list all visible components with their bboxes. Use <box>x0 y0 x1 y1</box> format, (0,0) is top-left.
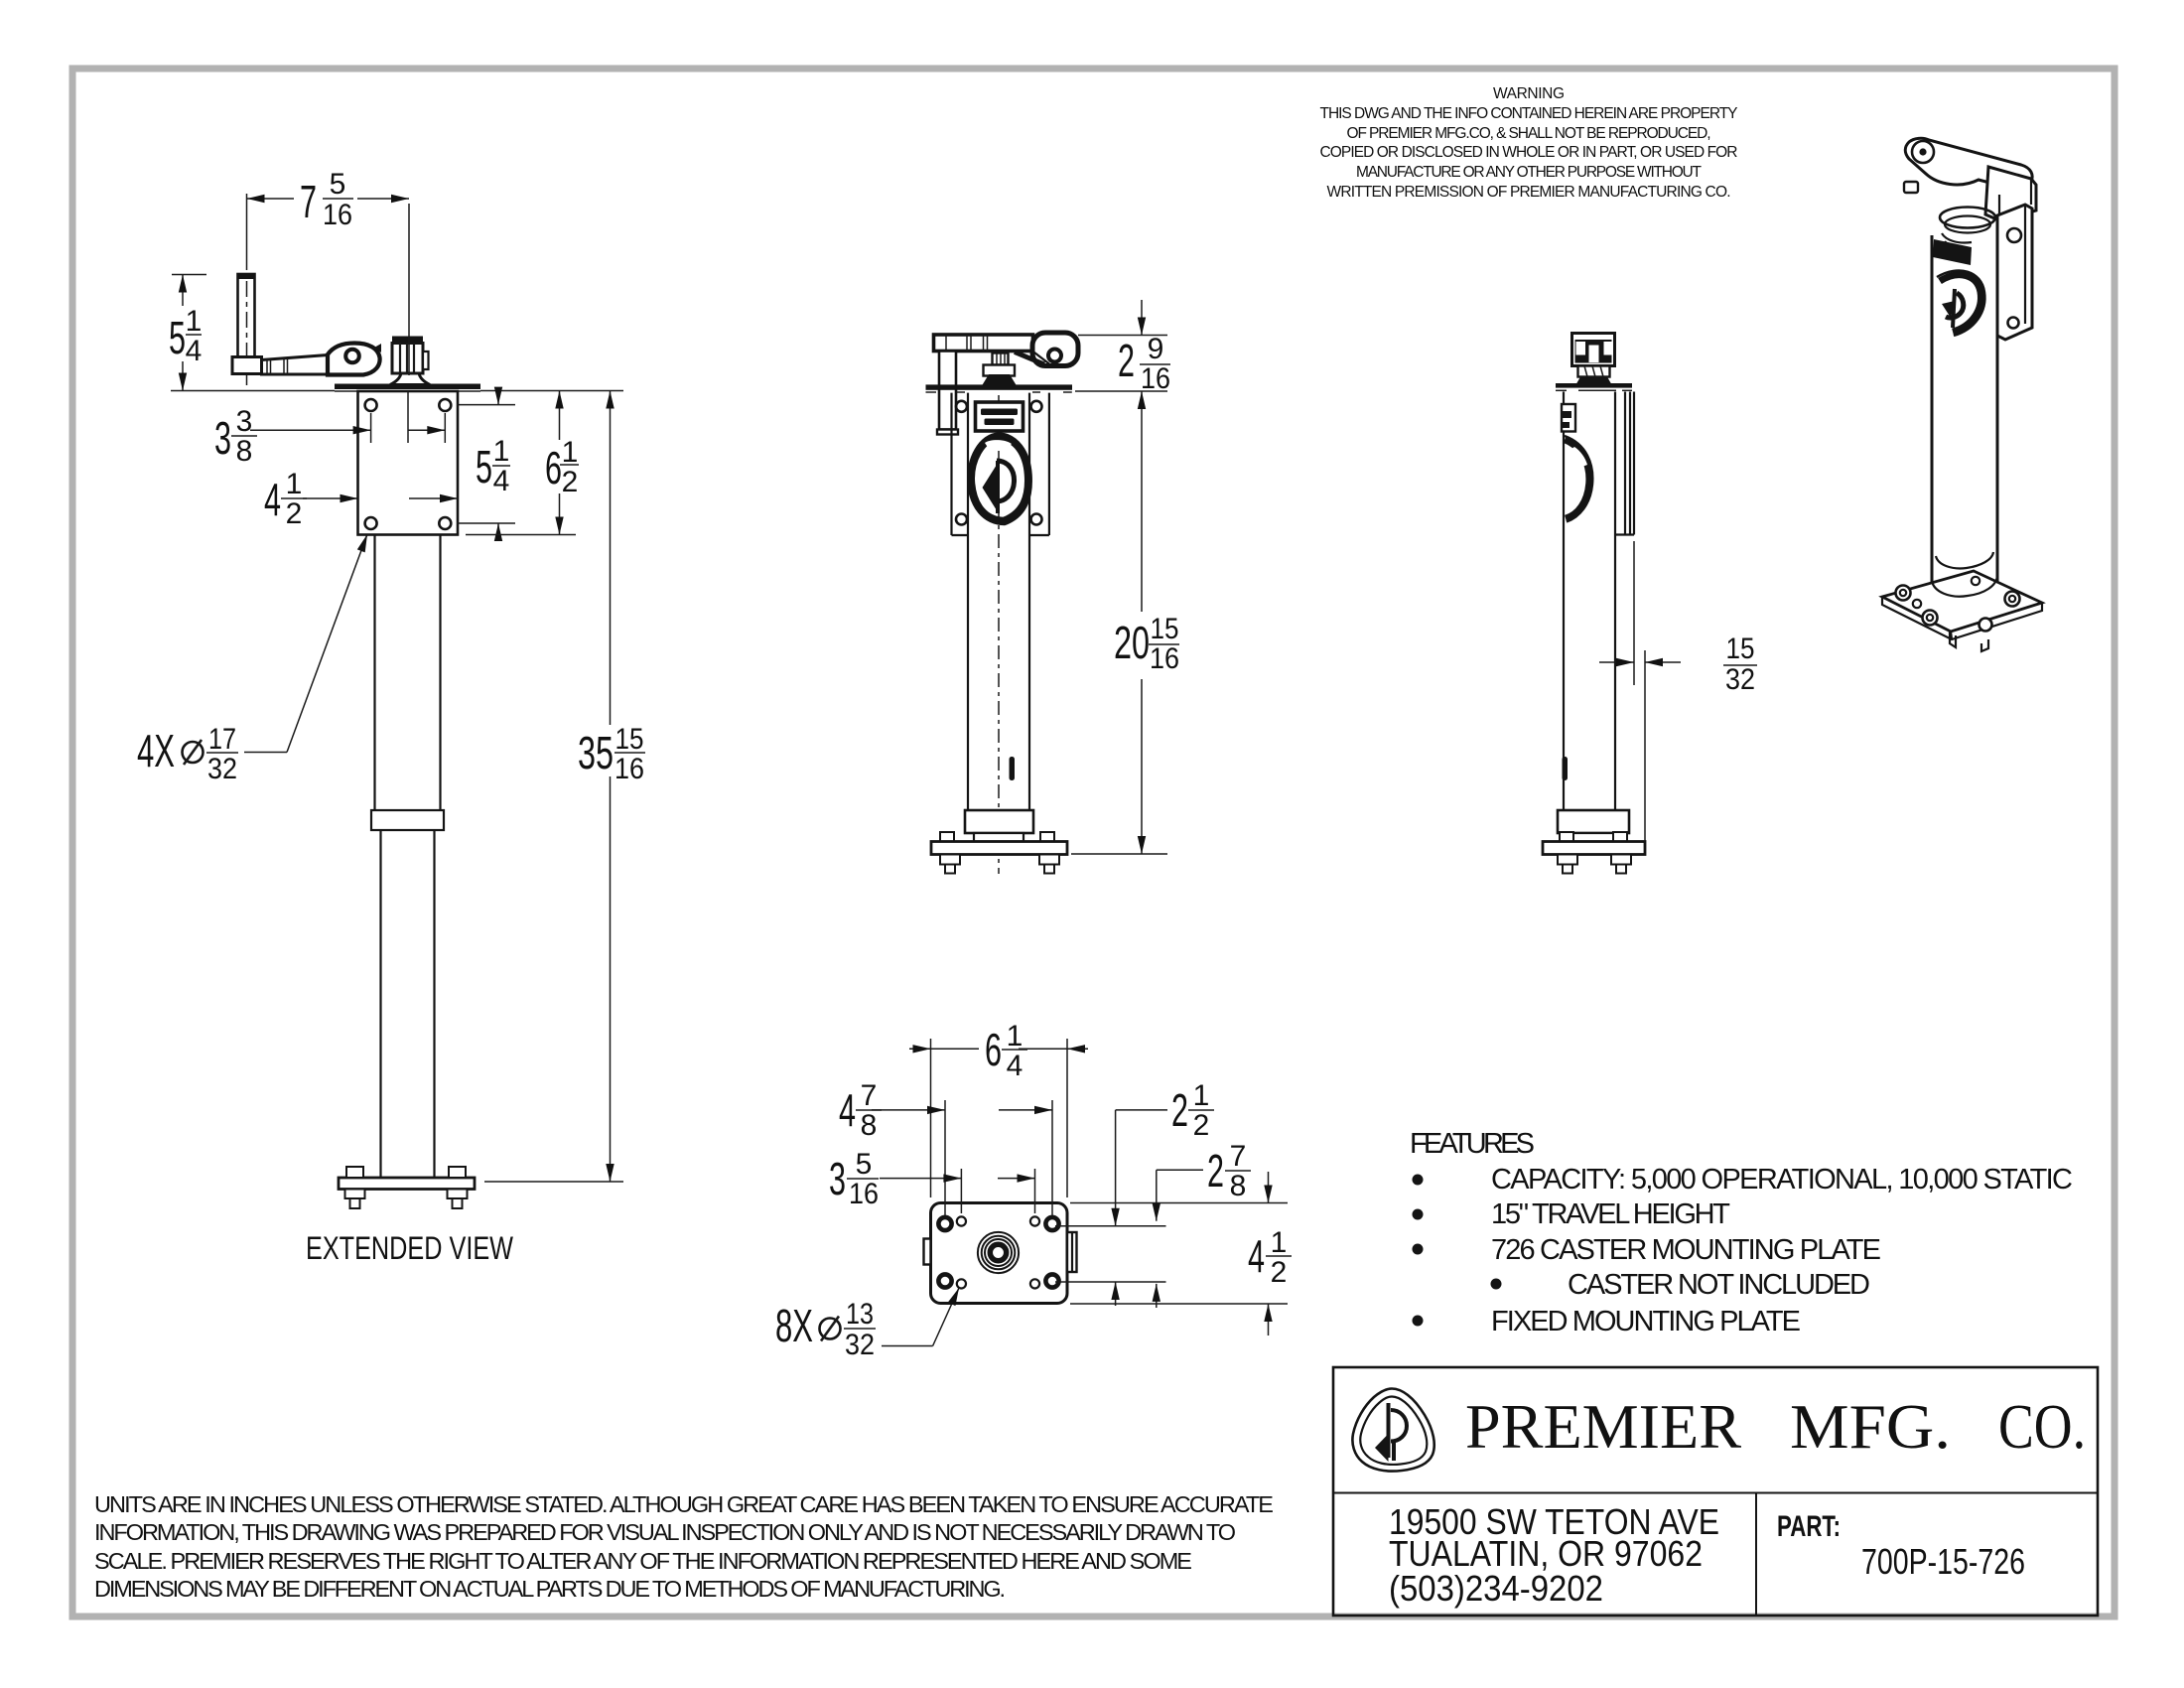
svg-text:INFORMATION, THIS DRAWING WAS: INFORMATION, THIS DRAWING WAS PREPARED F… <box>94 1519 1236 1545</box>
svg-text:1: 1 <box>1193 1079 1210 1112</box>
svg-text:700P-15-726: 700P-15-726 <box>1861 1541 2025 1582</box>
svg-text:COPIED OR DISCLOSED IN WHOLE O: COPIED OR DISCLOSED IN WHOLE OR IN PART,… <box>1320 144 1738 161</box>
svg-text:5: 5 <box>330 168 346 201</box>
svg-text:7: 7 <box>300 176 317 227</box>
svg-text:1: 1 <box>493 435 510 468</box>
svg-text:2: 2 <box>1171 1084 1188 1136</box>
svg-text:4: 4 <box>493 465 510 497</box>
svg-text:CASTER NOT INCLUDED: CASTER NOT INCLUDED <box>1568 1269 1870 1301</box>
svg-text:OF PREMIER MFG.CO, & SHALL NOT: OF PREMIER MFG.CO, & SHALL NOT BE REPROD… <box>1347 125 1711 142</box>
svg-text:MANUFACTURE OR ANY OTHER PURPO: MANUFACTURE OR ANY OTHER PURPOSE WITHOUT <box>1356 164 1703 181</box>
svg-text:FEATURES: FEATURES <box>1410 1128 1535 1160</box>
svg-text:CO.: CO. <box>1998 1391 2086 1462</box>
svg-text:1: 1 <box>1007 1020 1024 1053</box>
svg-text:1: 1 <box>562 436 579 469</box>
svg-text:DIMENSIONS MAY BE DIFFERENT ON: DIMENSIONS MAY BE DIFFERENT ON ACTUAL PA… <box>94 1576 1006 1602</box>
svg-text:7: 7 <box>1230 1140 1247 1173</box>
svg-text:3: 3 <box>236 405 253 438</box>
svg-text:4: 4 <box>1248 1230 1265 1282</box>
svg-text:8: 8 <box>236 435 253 468</box>
svg-text:726 CASTER MOUNTING PLATE: 726 CASTER MOUNTING PLATE <box>1491 1234 1881 1266</box>
svg-text:2: 2 <box>1193 1109 1210 1142</box>
svg-text:2: 2 <box>286 497 303 530</box>
svg-text:CAPACITY: 5,000 OPERATIONAL, 1: CAPACITY: 5,000 OPERATIONAL, 10,000 STAT… <box>1491 1164 2073 1196</box>
svg-text:3: 3 <box>829 1153 846 1204</box>
svg-text:6: 6 <box>545 442 562 493</box>
svg-text:(503)234-9202: (503)234-9202 <box>1389 1568 1603 1609</box>
svg-text:EXTENDED VIEW: EXTENDED VIEW <box>306 1230 514 1266</box>
svg-text:3: 3 <box>214 412 231 464</box>
svg-text:2: 2 <box>1271 1256 1288 1289</box>
svg-text:8: 8 <box>861 1109 878 1142</box>
svg-text:16: 16 <box>849 1178 879 1210</box>
svg-text:1: 1 <box>286 468 303 500</box>
svg-text:5: 5 <box>169 312 186 363</box>
svg-text:1: 1 <box>186 305 203 338</box>
svg-text:THIS DWG AND THE INFO CONTAINE: THIS DWG AND THE INFO CONTAINED HEREIN A… <box>1320 105 1738 122</box>
svg-text:17: 17 <box>208 723 236 756</box>
svg-text:5: 5 <box>856 1148 873 1181</box>
svg-text:15: 15 <box>1726 633 1755 665</box>
svg-text:32: 32 <box>845 1329 875 1361</box>
svg-text:SCALE. PREMIER RESERVES THE R: SCALE. PREMIER RESERVES THE RIGHT TO ALT… <box>94 1548 1192 1574</box>
svg-text:PREMIER: PREMIER <box>1465 1391 1741 1462</box>
svg-text:20: 20 <box>1114 617 1150 668</box>
svg-text:WRITTEN PREMISSION OF PREMIER: WRITTEN PREMISSION OF PREMIER MANUFACTUR… <box>1327 184 1731 201</box>
svg-text:PART:: PART: <box>1777 1510 1841 1543</box>
svg-text:UNITS ARE IN INCHES UNLESS OTH: UNITS ARE IN INCHES UNLESS OTHERWISE STA… <box>94 1491 1274 1517</box>
svg-text:16: 16 <box>1141 362 1170 395</box>
svg-text:15: 15 <box>1151 613 1179 645</box>
svg-text:2: 2 <box>562 466 579 498</box>
svg-text:FIXED MOUNTING PLATE: FIXED MOUNTING PLATE <box>1491 1306 1801 1337</box>
svg-text:4: 4 <box>264 474 281 525</box>
svg-text:7: 7 <box>861 1079 878 1112</box>
svg-text:2: 2 <box>1118 335 1135 386</box>
svg-text:4X: 4X <box>137 725 175 776</box>
svg-text:32: 32 <box>207 753 237 785</box>
svg-text:MFG.: MFG. <box>1790 1391 1951 1462</box>
svg-text:32: 32 <box>1725 663 1755 696</box>
svg-text:15: 15 <box>615 723 644 756</box>
svg-text:5: 5 <box>476 441 492 492</box>
svg-text:4: 4 <box>839 1084 856 1136</box>
svg-text:16: 16 <box>614 753 644 785</box>
svg-text:4: 4 <box>1007 1050 1024 1082</box>
svg-text:9: 9 <box>1148 333 1164 365</box>
svg-text:6: 6 <box>985 1024 1002 1075</box>
svg-text:2: 2 <box>1207 1145 1224 1196</box>
svg-text:8X: 8X <box>775 1300 813 1351</box>
svg-text:15" TRAVEL HEIGHT: 15" TRAVEL HEIGHT <box>1491 1198 1730 1230</box>
svg-text:13: 13 <box>846 1298 874 1331</box>
svg-text:8: 8 <box>1230 1170 1247 1202</box>
svg-text:1: 1 <box>1271 1226 1288 1259</box>
svg-text:35: 35 <box>578 727 614 778</box>
svg-text:4: 4 <box>186 335 203 367</box>
svg-text:16: 16 <box>1150 642 1179 675</box>
svg-text:WARNING: WARNING <box>1493 85 1565 102</box>
svg-text:16: 16 <box>323 199 352 231</box>
